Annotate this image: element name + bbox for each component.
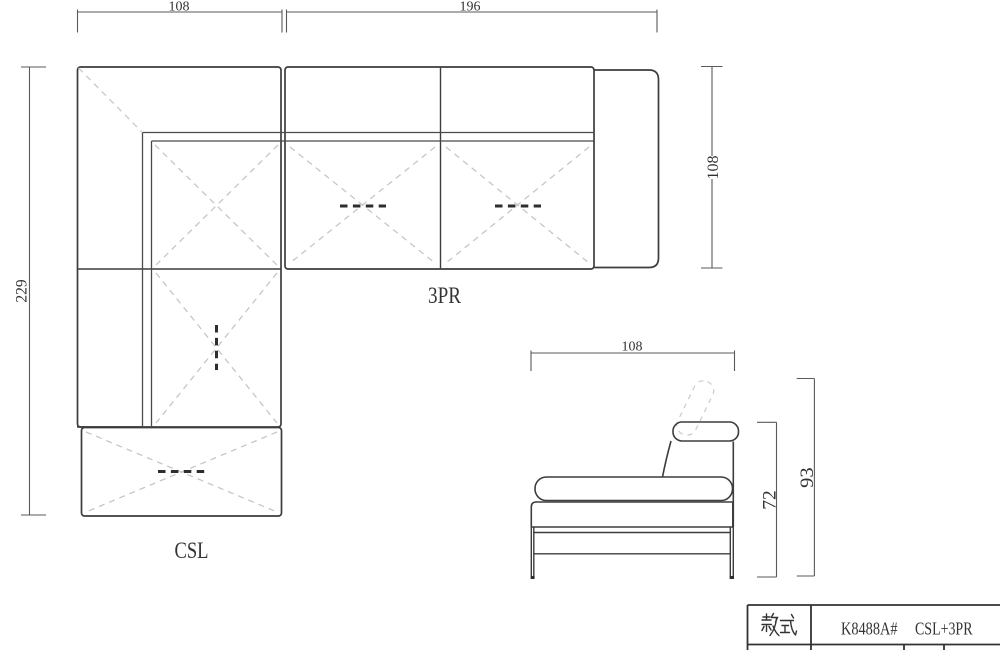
svg-text:108: 108	[169, 0, 190, 15]
svg-text:229: 229	[14, 279, 31, 303]
svg-text:108: 108	[622, 340, 643, 355]
svg-text:72: 72	[761, 490, 781, 510]
svg-text:3PR: 3PR	[428, 283, 462, 308]
svg-text:93: 93	[798, 467, 818, 488]
svg-text:CSL+3PR: CSL+3PR	[915, 619, 973, 639]
svg-text:K8488A#: K8488A#	[841, 619, 898, 639]
svg-text:CSL: CSL	[175, 538, 209, 563]
svg-text:196: 196	[460, 0, 481, 15]
svg-text:108: 108	[705, 156, 722, 180]
